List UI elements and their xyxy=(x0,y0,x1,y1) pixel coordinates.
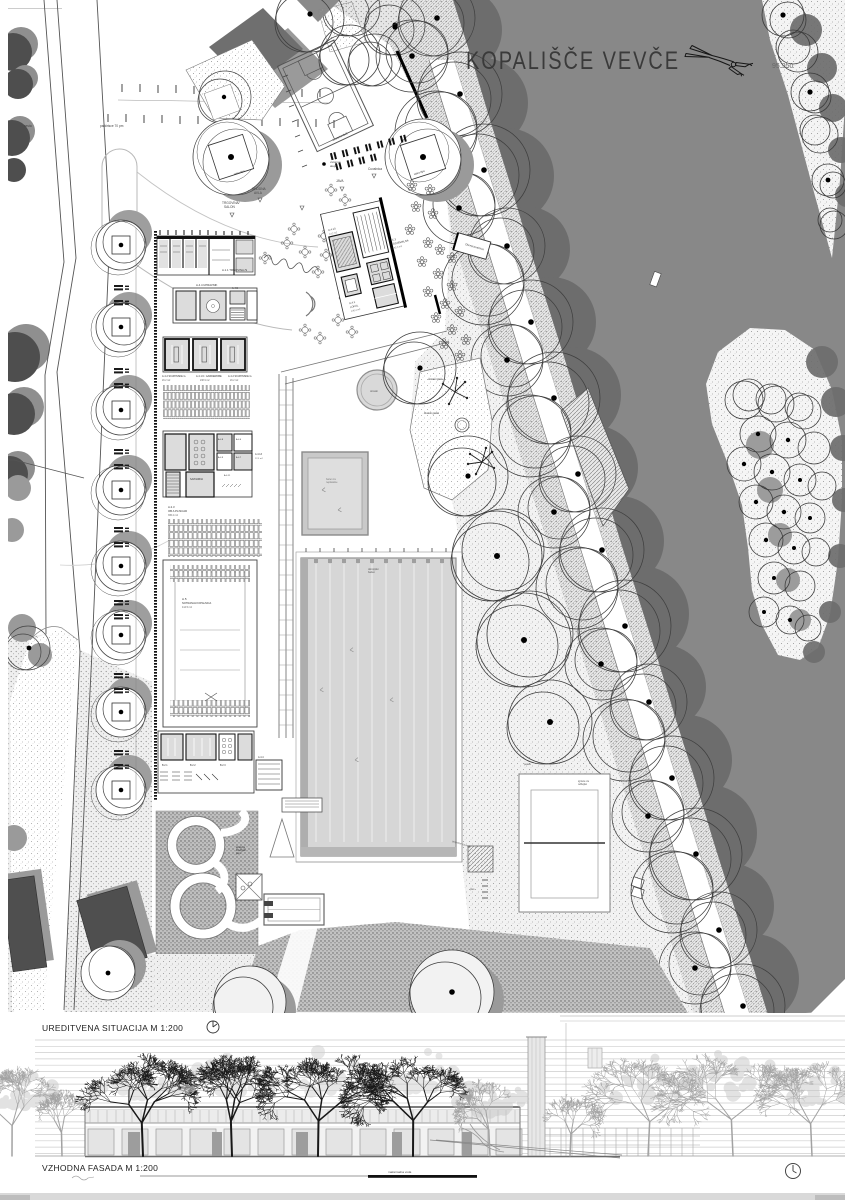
svg-text:238.9 m2: 238.9 m2 xyxy=(200,380,210,382)
svg-text:SAVNARNA: SAVNARNA xyxy=(190,478,203,481)
svg-text:395.2 m2: 395.2 m2 xyxy=(168,514,179,517)
svg-text:B.2.2: B.2.2 xyxy=(190,764,196,767)
svg-text:A.4.13: A.4.13 xyxy=(255,453,263,456)
svg-text:A.1.1 TRGOVINA /S: A.1.1 TRGOVINA /S xyxy=(222,268,247,272)
svg-text:A.4.4 UPRAVNIK: A.4.4 UPRAVNIK xyxy=(196,283,218,287)
svg-text:pesek: pesek xyxy=(524,762,532,766)
svg-text:UREDITVENA SITUACIJA M 1:200: UREDITVENA SITUACIJA M 1:200 xyxy=(42,1023,183,1033)
svg-text:parkirisce 70 pm: parkirisce 70 pm xyxy=(100,124,124,128)
svg-text:drustvo gosak: drustvo gosak xyxy=(424,412,440,415)
svg-text:neplavalce: neplavalce xyxy=(326,481,338,484)
svg-text:29.2 m2: 29.2 m2 xyxy=(162,380,171,382)
svg-text:otrosko igrisce: otrosko igrisce xyxy=(428,378,444,381)
svg-text:22.5 m2: 22.5 m2 xyxy=(255,458,264,460)
svg-text:NOTRANJA KOPALNICA: NOTRANJA KOPALNICA xyxy=(182,601,211,605)
svg-text:A.4.8: A.4.8 xyxy=(218,438,224,441)
svg-text:odbojko: odbojko xyxy=(578,782,588,786)
svg-text:KOPALIŠČE VEVČE: KOPALIŠČE VEVČE xyxy=(466,47,680,75)
svg-text:JAVA: JAVA xyxy=(336,179,344,183)
svg-text:A.4.6: A.4.6 xyxy=(236,438,242,441)
svg-text:gore: gore xyxy=(236,852,241,855)
svg-text:B.2.1: B.2.1 xyxy=(162,764,168,767)
svg-text:A.4.2 SKUPINSKE G.: A.4.2 SKUPINSKE G. xyxy=(228,375,252,378)
svg-text:cesta: cesta xyxy=(24,124,32,128)
svg-text:AVLA: AVLA xyxy=(254,191,263,195)
svg-text:A.4.9: A.4.9 xyxy=(218,456,224,459)
svg-text:A.4.1 D. GARDEROBE: A.4.1 D. GARDEROBE xyxy=(196,375,222,378)
svg-text:Cuvalnica: Cuvalnica xyxy=(368,167,382,171)
svg-text:A.4.5: A.4.5 xyxy=(232,287,238,290)
svg-text:VZHODNA FASADA M 1:200: VZHODNA FASADA M 1:200 xyxy=(42,1163,158,1173)
svg-text:A.4.2 SKUPINSKE G.: A.4.2 SKUPINSKE G. xyxy=(162,375,186,378)
svg-text:A.5: A.5 xyxy=(182,597,187,601)
svg-text:aleja: aleja xyxy=(330,164,337,168)
svg-text:otroski: otroski xyxy=(370,389,378,393)
svg-text:95.950: 95.950 xyxy=(772,63,794,70)
svg-text:OB A PLISCAD: OB A PLISCAD xyxy=(168,509,187,513)
svg-text:29.2 m2: 29.2 m2 xyxy=(230,380,239,382)
svg-text:A.4.4: A.4.4 xyxy=(258,756,264,759)
svg-text:414.5 m2: 414.5 m2 xyxy=(182,606,193,609)
svg-text:A.4.7: A.4.7 xyxy=(236,456,242,459)
svg-text:SALON: SALON xyxy=(224,205,236,209)
svg-text:B.2.3: B.2.3 xyxy=(220,764,226,767)
svg-text:A.4.11: A.4.11 xyxy=(224,474,231,477)
svg-text:maksimalna voda: maksimalna voda xyxy=(388,1170,412,1174)
svg-text:bazen: bazen xyxy=(368,570,376,574)
